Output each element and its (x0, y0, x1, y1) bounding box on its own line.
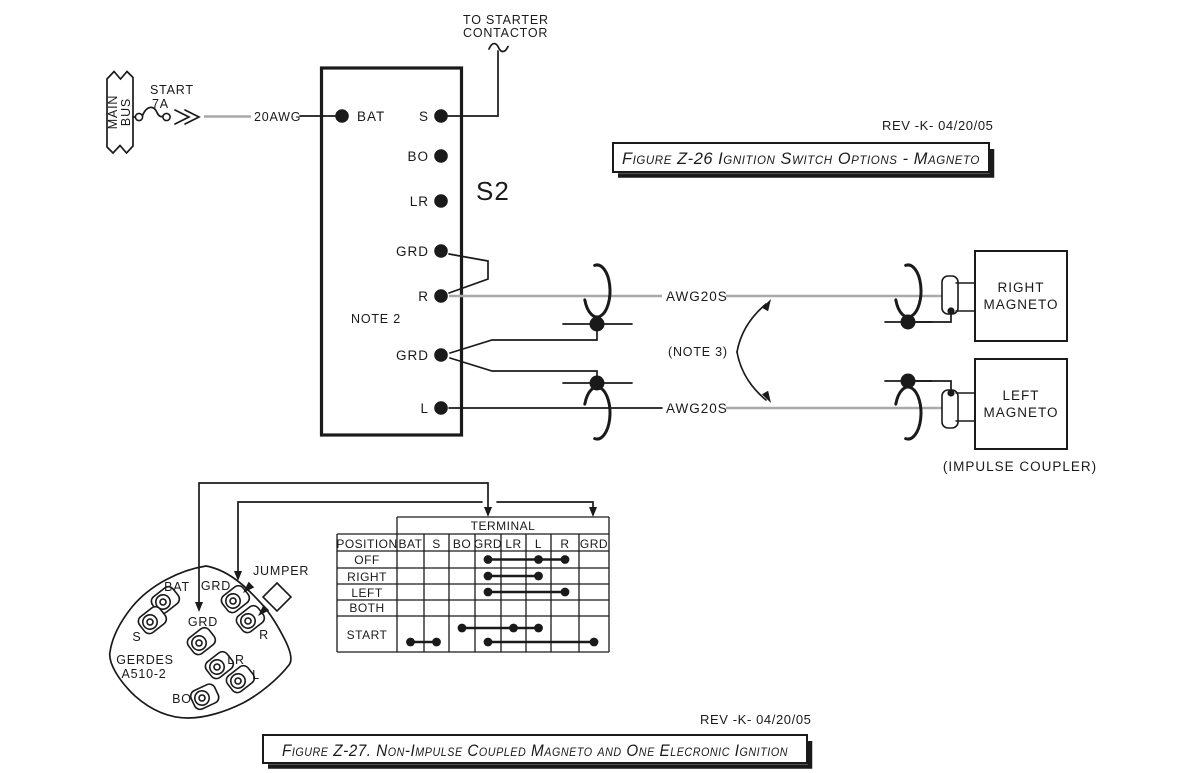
row-label-left: LEFT (351, 586, 383, 600)
arrowhead-icon (195, 602, 203, 612)
switch-designator: S2 (476, 176, 510, 206)
right-magneto-line2: MAGNETO (983, 297, 1058, 312)
row-label-off: OFF (354, 553, 380, 567)
table-connection-dot (458, 624, 467, 633)
switch-position-table: TERMINAL POSITION BAT S BO GRD LR L R GR… (336, 517, 609, 652)
table-connection-dot (534, 572, 543, 581)
left-magneto-assembly: LEFT MAGNETO (IMPULSE COUPLER) (885, 359, 1097, 474)
table-connection-dot (406, 638, 415, 647)
breaker-rating: 7A (152, 97, 169, 111)
shield-termination-switch-right (450, 265, 632, 353)
bo-terminal-dot (434, 149, 448, 163)
pin-bo (189, 682, 221, 711)
pin-r-label: R (259, 628, 269, 642)
note3-arrow-upper (737, 304, 766, 352)
pin-lr-label: LR (227, 653, 245, 667)
shield-ground-lead (915, 314, 951, 322)
left-magneto-line2: MAGNETO (983, 405, 1058, 420)
to-starter-line2: CONTACTOR (463, 26, 548, 40)
revision-top: REV -K- 04/20/05 (882, 118, 994, 133)
shield-ground-lead (450, 358, 597, 377)
bat-terminal-label: BAT (357, 109, 385, 124)
table-connection-dot (534, 555, 543, 564)
col-header-grd2: GRD (580, 537, 608, 551)
figure-z26-title: Figure Z-26 Ignition Switch Options - Ma… (622, 149, 980, 168)
pin-grd-center-label: GRD (188, 615, 218, 629)
table-connection-dot (561, 588, 570, 597)
left-magneto-line1: LEFT (1002, 388, 1039, 403)
shield-ground-dot (901, 374, 916, 389)
grd-upper-terminal-dot (434, 244, 448, 258)
arrowhead-icon (762, 299, 771, 311)
note3-arrow-lower (737, 352, 766, 400)
shield-termination-switch-left (450, 358, 632, 439)
shield-ground-lead (915, 381, 951, 390)
l-terminal-label: L (420, 401, 429, 416)
left-magneto-box (975, 359, 1067, 449)
table-connections (406, 555, 598, 646)
left-p-lead-gauge: AWG20S (666, 401, 728, 416)
note3-label: (NOTE 3) (668, 345, 728, 359)
figure-z27-titleblock: REV -K- 04/20/05 Figure Z-27. Non-Impuls… (263, 712, 812, 767)
revision-bottom: REV -K- 04/20/05 (700, 712, 812, 727)
grd-lower-terminal-dot (434, 348, 448, 362)
table-connection-dot (432, 638, 441, 647)
r-terminal-label: R (418, 289, 429, 304)
wiring-diagram-page: MAIN BUS START 7A 20AWG TO STARTER CONTA… (0, 0, 1191, 773)
breaker-label: START (150, 83, 194, 97)
connector-maker: GERDES (116, 653, 174, 667)
pin-bat-label: BAT (164, 580, 190, 594)
figure-z26-titleblock: REV -K- 04/20/05 Figure Z-26 Ignition Sw… (613, 118, 994, 176)
col-header-lr: LR (505, 537, 521, 551)
table-connection-dot (534, 624, 543, 633)
lr-terminal-dot (434, 194, 448, 208)
jumper-label: JUMPER (253, 564, 309, 578)
table-connection-dot (561, 555, 570, 564)
lr-terminal-label: LR (410, 194, 429, 209)
wire-gauge-label: 20AWG (254, 110, 301, 124)
l-terminal-dot (434, 401, 448, 415)
table-title: TERMINAL (471, 519, 536, 533)
right-magneto-line1: RIGHT (998, 280, 1045, 295)
breaker-terminal-right (163, 113, 170, 120)
right-p-lead-gauge: AWG20S (666, 289, 728, 304)
figure-z27-title: Figure Z-27. Non-Impulse Coupled Magneto… (282, 741, 788, 760)
table-connection-dot (484, 572, 493, 581)
starter-contactor-wire: TO STARTER CONTACTOR (448, 13, 549, 116)
shield-loop-icon (585, 387, 610, 439)
connector-part-number: A510-2 (121, 667, 166, 681)
s-terminal-dot (434, 109, 448, 123)
switch-note: NOTE 2 (351, 312, 401, 326)
table-connection-dot (484, 588, 493, 597)
shield-loop-icon (896, 265, 921, 317)
bat-terminal-dot (335, 109, 349, 123)
chevron-icon (175, 110, 189, 124)
arrowhead-icon (484, 507, 492, 517)
shield-loop-icon (896, 387, 921, 439)
col-header-bat: BAT (399, 537, 423, 551)
grd-lower-terminal-label: GRD (396, 348, 429, 363)
main-bus-feed: MAIN BUS START 7A 20AWG (106, 72, 335, 154)
right-magneto-box (975, 251, 1067, 341)
row-label-right: RIGHT (347, 570, 387, 584)
arrowhead-icon (589, 507, 597, 517)
breaker-terminal-left (135, 113, 142, 120)
note3-callout: (NOTE 3) (668, 299, 771, 403)
jumper-diamond (263, 583, 291, 611)
table-connection-dot (484, 555, 493, 564)
s-terminal-label: S (419, 109, 429, 124)
col-header-r: R (560, 537, 569, 551)
table-connection-dot (484, 638, 493, 647)
s-terminal-wire (448, 51, 498, 116)
impulse-coupler-note: (IMPULSE COUPLER) (943, 459, 1097, 474)
ignition-switch-s2: BAT S BO LR GRD R GRD L S2 NOTE 2 (322, 68, 510, 435)
pin-grd-center (185, 625, 218, 657)
bo-terminal-label: BO (407, 149, 429, 164)
col-header-l: L (535, 537, 542, 551)
pin-l-label: L (252, 668, 260, 682)
shield-loop-icon (585, 265, 610, 317)
shield-ground-dot (901, 315, 916, 330)
pin-s-label: S (132, 630, 141, 644)
table-connection-dot (590, 638, 599, 647)
grd-top-feed-line (497, 502, 593, 508)
pin-grd-top-label: GRD (201, 579, 231, 593)
table-position-header: POSITION (336, 537, 397, 551)
pin-bo-label: BO (172, 692, 192, 706)
row-label-start: START (347, 628, 388, 642)
grd-to-r-link (449, 254, 488, 293)
diagram-canvas: MAIN BUS START 7A 20AWG TO STARTER CONTA… (0, 0, 1191, 773)
row-label-both: BOTH (349, 601, 384, 615)
col-header-s: S (432, 537, 441, 551)
shield-ground-lead (450, 330, 597, 353)
bus-label-line1: MAIN (106, 95, 120, 129)
col-header-grd1: GRD (474, 537, 502, 551)
bus-label-line2: BUS (119, 98, 133, 126)
r-terminal-dot (434, 289, 448, 303)
grd-upper-terminal-label: GRD (396, 244, 429, 259)
to-starter-line1: TO STARTER (463, 13, 549, 27)
gerdes-connector: BAT GRD GRD S R LR L BO GERDES A510-2 JU… (110, 564, 309, 718)
table-connection-dot (509, 624, 518, 633)
col-header-bo: BO (453, 537, 471, 551)
